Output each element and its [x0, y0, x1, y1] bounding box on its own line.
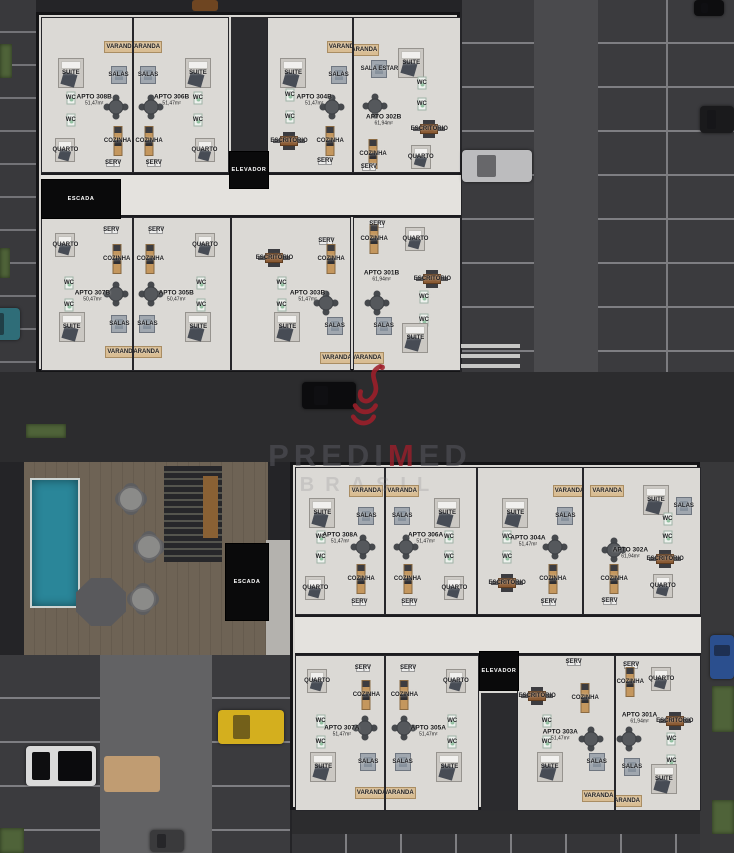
room-label-varanda: VARANDA — [322, 355, 351, 361]
unit-area: 51,47m² — [77, 100, 112, 106]
room-label-salas: SALAS — [138, 72, 158, 78]
unit-label: APTO 306B51,47m² — [154, 93, 189, 106]
elevador-elevator: ELEVADOR — [229, 151, 269, 189]
room-label-salas: SALAS — [392, 513, 412, 519]
unit-label: APTO 305A51,47m² — [411, 725, 446, 738]
escada-stairs: ESCADA — [225, 543, 269, 621]
unit-label: APTO 303B51,47m² — [290, 289, 325, 302]
room-label-salas: SALAS — [622, 764, 642, 770]
apartment-unit: SERVCOZINHAQUARTOESCRITÓRIOWCWCSUITESALA… — [615, 655, 701, 811]
round-table — [136, 534, 162, 560]
car-gray-bottom — [150, 830, 184, 852]
room-label-suite: SUITE — [438, 510, 456, 516]
apartment-unit: SUITEVARANDASALASWCWCQUARTOCOZINHASERVAP… — [385, 467, 477, 615]
room-label-serv: SERV — [400, 665, 416, 671]
apartment-unit: SUITEVARANDASALASWCWCQUARTOCOZINHASERVAP… — [41, 17, 133, 173]
unit-area: 61,94m² — [622, 718, 657, 724]
mid-road — [0, 372, 734, 462]
room-label-suite: SUITE — [655, 776, 673, 782]
room-label-wc: WC — [417, 101, 427, 107]
room-label-serv: SERV — [361, 164, 377, 170]
room-label-serv: SERV — [146, 160, 162, 166]
stall-divider — [666, 0, 668, 372]
room-label-varanda: VARANDA — [353, 47, 377, 53]
round-table — [130, 586, 156, 612]
unit-id: APTO 308B — [77, 93, 112, 100]
room-label-salas: SALAS — [137, 321, 157, 327]
room-label-wc: WC — [663, 534, 673, 540]
room-label-serv: SERV — [317, 158, 333, 164]
room-label-varanda: VARANDA — [387, 488, 417, 494]
car-dark-right-edge — [700, 106, 734, 133]
room-label-salas: SALAS — [358, 759, 378, 765]
parking-stalls-bottom — [292, 834, 734, 853]
unit-id: APTO 307B — [75, 289, 110, 296]
room-label-cozinha: COZINHA — [394, 576, 421, 582]
grass-patch — [0, 44, 12, 78]
dining-table — [583, 732, 598, 747]
room-label-cozinha: COZINHA — [359, 151, 386, 157]
unit-area: 61,94m² — [613, 553, 648, 559]
room-label-varanda: VARANDA — [353, 355, 382, 361]
dining-table — [547, 539, 562, 554]
room-label-cozinha: COZINHA — [572, 695, 599, 701]
car-silver-parking — [462, 150, 532, 182]
unit-area: 61,94m² — [366, 120, 401, 126]
room-label-wc: WC — [419, 294, 429, 300]
dining-table — [397, 721, 412, 736]
room-label-varanda: VARANDA — [352, 488, 382, 494]
apartment-unit: ESCRITÓRIOSERVCOZINHAWCWCSUITESALASVARAN… — [517, 655, 615, 811]
unit-id: APTO 302A — [613, 546, 648, 553]
grass-patch — [26, 424, 66, 438]
unit-label: APTO 303A51,47m² — [543, 728, 578, 741]
unit-label: APTO 308B51,47m² — [77, 93, 112, 106]
room-label-quarto: QUARTO — [441, 585, 467, 591]
room-label-wc: WC — [196, 302, 206, 308]
room-label-escritorio: ESCRITÓRIO — [270, 138, 307, 144]
room-label-cozinha: COZINHA — [135, 138, 162, 144]
room-label-salas: SALAS — [392, 759, 412, 765]
dining-table — [370, 296, 385, 311]
pool — [30, 478, 80, 608]
room-label-wc: WC — [316, 718, 326, 724]
room-label-serv: SERV — [401, 599, 417, 605]
room-label-cozinha: COZINHA — [353, 692, 380, 698]
room-label-escritorio: ESCRITÓRIO — [414, 276, 451, 282]
unit-label: APTO 306A51,47m² — [408, 532, 443, 545]
car-yellow — [218, 710, 284, 744]
dining-table — [622, 732, 637, 747]
apartment-unit: SUITEVARANDASALASWCWCQUARTOCOZINHASERVAP… — [295, 467, 385, 615]
room-label-quarto: QUARTO — [302, 585, 328, 591]
elevador-elevator: ELEVADOR — [479, 651, 519, 691]
apartment-unit: SUITEVARANDASALASWCWCQUARTOCOZINHASERVAP… — [133, 17, 229, 173]
car-teal-left-street — [0, 308, 20, 340]
room-label-salas: SALAS — [324, 323, 344, 329]
unit-label: APTO 302B61,94m² — [366, 113, 401, 126]
site-plan-render: SUITEVARANDASALASWCWCQUARTOCOZINHASERVAP… — [0, 0, 734, 853]
room-label-wc: WC — [502, 554, 512, 560]
car-blue-right-street — [710, 635, 734, 679]
room-label-serv: SERV — [541, 599, 557, 605]
round-table — [118, 486, 144, 512]
room-label-salas: SALAS — [108, 72, 128, 78]
parking-stalls-right-inner — [462, 0, 534, 372]
room-label-suite: SUITE — [189, 70, 207, 76]
room-label-cozinha: COZINHA — [317, 256, 344, 262]
room-label-suite: SUITE — [279, 324, 297, 330]
parking-stalls-bottom-mid — [212, 655, 290, 853]
room-label-varanda: VARANDA — [357, 790, 385, 796]
room-label-wc: WC — [419, 317, 429, 323]
room-label-serv: SERV — [103, 227, 119, 233]
room-label-cozinha: COZINHA — [104, 138, 131, 144]
room-label-suite: SUITE — [63, 324, 81, 330]
room-label-salas: SALAS — [356, 513, 376, 519]
room-label-salas: SALAS — [109, 321, 129, 327]
unit-area: 51,47m² — [324, 732, 359, 738]
room-label-serv: SERV — [318, 238, 334, 244]
door-mat — [104, 756, 160, 792]
room-label-wc: WC — [66, 117, 76, 123]
room-label-serv: SERV — [623, 662, 639, 668]
room-label-varanda: VARANDA — [133, 44, 160, 50]
unit-label: APTO 305B50,47m² — [159, 289, 194, 302]
room-label-serv: SERV — [566, 659, 582, 665]
unit-label: APTO 304B51,47m² — [297, 93, 332, 106]
entry-walkway — [266, 540, 292, 658]
room-label-varanda: VARANDA — [584, 793, 614, 799]
room-label-wc: WC — [417, 80, 427, 86]
room-label-escritorio: ESCRITÓRIO — [656, 718, 693, 724]
room-label-wc: WC — [447, 739, 457, 745]
grass-patch — [712, 800, 734, 834]
room-label-quarto: QUARTO — [52, 242, 78, 248]
apartment-unit: VARANDASALA ESTARSUITEWCWCESCRITÓRIOQUAR… — [353, 17, 461, 173]
grill-pergola — [164, 466, 222, 562]
grass-patch — [0, 828, 24, 853]
room-label-quarto: QUARTO — [192, 242, 218, 248]
room-label-quarto: QUARTO — [52, 147, 78, 153]
unit-id: APTO 303B — [290, 289, 325, 296]
room-label-cozinha: COZINHA — [617, 679, 644, 685]
apartment-unit: SUITEVARANDASALASWCWCESCRITÓRIOCOZINHASE… — [477, 467, 583, 615]
room-label-varanda: VARANDA — [107, 349, 133, 355]
room-label-varanda: VARANDA — [329, 44, 353, 50]
escada-stairs: ESCADA — [41, 179, 121, 219]
unit-id: APTO 307A — [324, 725, 359, 732]
unit-area: 51,47m² — [411, 732, 446, 738]
room-label-serv: SERV — [601, 598, 617, 604]
unit-label: APTO 301A61,94m² — [622, 711, 657, 724]
room-label-varanda: VARANDA — [385, 790, 414, 796]
room-label-suite: SUITE — [647, 497, 665, 503]
room-label-wc: WC — [444, 534, 454, 540]
room-label-escritorio: ESCRITÓRIO — [647, 556, 684, 562]
room-label-serv: SERV — [148, 227, 164, 233]
room-label-salas: SALAS — [555, 513, 575, 519]
room-label-escritorio: ESCRITÓRIO — [519, 693, 556, 699]
unit-id: APTO 303A — [543, 728, 578, 735]
room-label-salas: SALAS — [587, 759, 607, 765]
unit-label: APTO 302A61,94m² — [613, 546, 648, 559]
unit-area: 51,47m² — [290, 296, 325, 302]
bottom-lane — [100, 655, 212, 853]
room-label-cozinha: COZINHA — [600, 576, 627, 582]
unit-label: APTO 304A51,47m² — [510, 535, 545, 548]
unit-label: APTO 307A51,47m² — [324, 725, 359, 738]
truck-pickup — [26, 746, 96, 786]
unit-id: APTO 301B — [364, 269, 399, 276]
room-label-suite: SUITE — [284, 70, 302, 76]
unit-id: APTO 308A — [322, 532, 357, 539]
room-label-wc: WC — [64, 302, 74, 308]
room-label-wc: WC — [64, 280, 74, 286]
room-label-quarto: QUARTO — [648, 676, 674, 682]
apartment-unit: ESCRITÓRIOSERVCOZINHAWCWCSUITESALASVARAN… — [231, 217, 351, 371]
unit-area: 51,47m² — [543, 735, 578, 741]
room-label-serv: SERV — [105, 160, 121, 166]
room-label-suite: SUITE — [189, 324, 207, 330]
room-label-suite: SUITE — [314, 510, 332, 516]
room-label-cozinha: COZINHA — [103, 256, 130, 262]
unit-id: APTO 306A — [408, 532, 443, 539]
room-label-salas: SALAS — [328, 72, 348, 78]
unit-id: APTO 305B — [159, 289, 194, 296]
room-label-suite: SUITE — [402, 60, 420, 66]
unit-id: APTO 304B — [297, 93, 332, 100]
dining-table — [108, 287, 123, 302]
grass-patch — [712, 686, 734, 732]
room-label-quarto: QUARTO — [650, 583, 676, 589]
floor-plan-b: SUITEVARANDASALASWCWCQUARTOCOZINHASERVAP… — [36, 12, 460, 372]
unit-label: APTO 308A51,47m² — [322, 532, 357, 545]
room-label-wc: WC — [285, 92, 295, 98]
unit-area: 50,47m² — [75, 296, 110, 302]
room-label-varanda: VARANDA — [592, 488, 622, 494]
room-label-escritorio: ESCRITÓRIO — [256, 255, 293, 261]
car-black-mid-road — [302, 382, 356, 409]
apartment-unit: VARANDASALASSUITEWCWCESCRITÓRIOQUARTOCOZ… — [583, 467, 701, 615]
room-label-cozinha: COZINHA — [137, 256, 164, 262]
room-label-wc: WC — [193, 95, 203, 101]
patio-table — [192, 0, 218, 11]
dining-table — [144, 287, 159, 302]
room-label-salas: SALAS — [674, 503, 694, 509]
room-label-varanda: VARANDA — [133, 349, 159, 355]
room-label-serv: SERV — [369, 221, 385, 227]
room-label-suite: SUITE — [507, 510, 525, 516]
room-label-wc: WC — [193, 117, 203, 123]
unit-area: 50,47m² — [159, 296, 194, 302]
room-label-quarto: QUARTO — [304, 678, 330, 684]
room-label-serv: SERV — [351, 599, 367, 605]
room-label-wc: WC — [277, 302, 287, 308]
floor-plan-a: SUITEVARANDASALASWCWCQUARTOCOZINHASERVAP… — [290, 462, 700, 810]
corridor — [295, 615, 701, 655]
room-label-cozinha: COZINHA — [391, 692, 418, 698]
unit-label: APTO 301B61,94m² — [364, 269, 399, 282]
unit-label: APTO 307B50,47m² — [75, 289, 110, 302]
room-label-wc: WC — [447, 718, 457, 724]
room-label-quarto: QUARTO — [192, 147, 218, 153]
room-label-wc: WC — [277, 280, 287, 286]
pergola — [76, 578, 126, 626]
room-label-escritorio: ESCRITÓRIO — [488, 580, 525, 586]
unit-id: APTO 302B — [366, 113, 401, 120]
room-label-wc: WC — [285, 114, 295, 120]
apartment-unit: SERVCOZINHAQUARTOESCRITÓRIOWCWCSUITESALA… — [353, 217, 461, 371]
apartment-unit: QUARTOSERVCOZINHAWCWCSUITESALASVARANDAAP… — [41, 217, 133, 371]
dining-table — [368, 98, 383, 113]
apartment-unit: SUITEVARANDASALASWCWCESCRITÓRIOCOZINHASE… — [267, 17, 353, 173]
room-label-cozinha: COZINHA — [316, 138, 343, 144]
unit-id: APTO 305A — [411, 725, 446, 732]
room-label-salas: SALAS — [374, 323, 394, 329]
room-label-wc: WC — [542, 718, 552, 724]
unit-area: 51,47m² — [322, 539, 357, 545]
unit-area: 51,47m² — [297, 100, 332, 106]
room-label-serv: SERV — [355, 665, 371, 671]
room-label-varanda: VARANDA — [106, 44, 133, 50]
room-label-quarto: QUARTO — [403, 236, 429, 242]
unit-id: APTO 304A — [510, 535, 545, 542]
room-label-wc: WC — [663, 516, 673, 522]
room-label-cozinha: COZINHA — [347, 576, 374, 582]
grass-patch — [0, 248, 10, 278]
unit-area: 51,47m² — [408, 539, 443, 545]
parking-lane — [534, 0, 598, 372]
unit-area: 51,47m² — [154, 100, 189, 106]
unit-area: 51,47m² — [510, 542, 545, 548]
apartment-unit: QUARTOSERVCOZINHAWCWCSUITESALASVARANDAAP… — [385, 655, 479, 811]
room-label-varanda: VARANDA — [555, 488, 583, 494]
crosswalk — [458, 344, 520, 370]
room-label-quarto: QUARTO — [443, 678, 469, 684]
room-label-wc: WC — [666, 758, 676, 764]
room-label-suite: SUITE — [62, 70, 80, 76]
room-label-wc: WC — [666, 736, 676, 742]
unit-id: APTO 301A — [622, 711, 657, 718]
room-label-wc: WC — [66, 95, 76, 101]
apartment-unit: QUARTOSERVCOZINHAWCWCSUITESALASVARANDAAP… — [133, 217, 231, 371]
car-black-top-right — [694, 0, 724, 16]
room-label-varanda: VARANDA — [615, 798, 640, 804]
unit-id: APTO 306B — [154, 93, 189, 100]
room-label-suite: SUITE — [407, 335, 425, 341]
room-label-cozinha: COZINHA — [360, 236, 387, 242]
elevator-shaft — [231, 17, 267, 151]
room-label-escritorio: ESCRITÓRIO — [411, 126, 448, 132]
room-label-wc: WC — [196, 280, 206, 286]
room-label-suite: SUITE — [441, 764, 459, 770]
apartment-unit: QUARTOSERVCOZINHAWCWCSUITESALASVARANDAAP… — [295, 655, 385, 811]
room-label-suite: SUITE — [541, 764, 559, 770]
room-label-cozinha: COZINHA — [539, 576, 566, 582]
room-label-sala-estar: SALA ESTAR — [361, 66, 399, 72]
room-label-quarto: QUARTO — [408, 154, 434, 160]
unit-area: 61,94m² — [364, 276, 399, 282]
elevator-shaft — [481, 693, 517, 811]
room-label-wc: WC — [316, 554, 326, 560]
room-label-suite: SUITE — [314, 764, 332, 770]
room-label-wc: WC — [316, 739, 326, 745]
room-label-wc: WC — [444, 554, 454, 560]
